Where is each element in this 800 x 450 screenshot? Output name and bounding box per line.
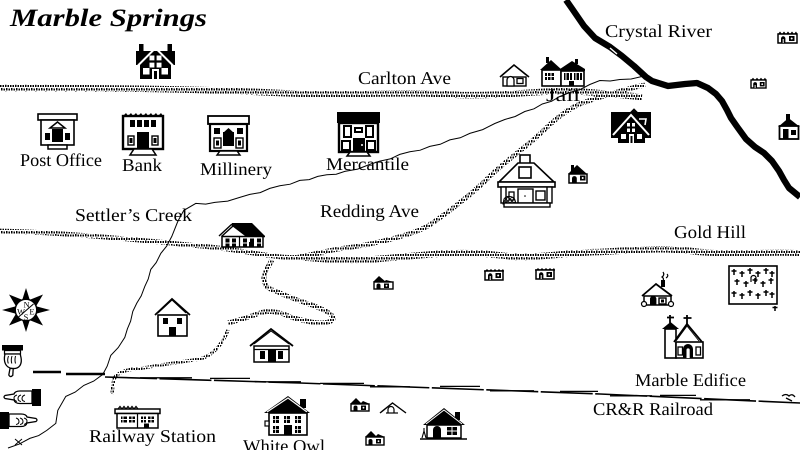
svg-text:Bank: Bank	[122, 155, 162, 175]
svg-text:Post Office: Post Office	[20, 150, 102, 170]
svg-text:Railway Station: Railway Station	[89, 426, 216, 446]
svg-text:Crystal River: Crystal River	[605, 21, 712, 41]
svg-text:S: S	[24, 312, 29, 322]
svg-text:Jail: Jail	[546, 85, 580, 105]
svg-text:Gold Hill: Gold Hill	[674, 222, 746, 242]
svg-text:Marble Springs: Marble Springs	[9, 5, 207, 32]
svg-text:E: E	[29, 307, 34, 317]
svg-text:Millinery: Millinery	[200, 159, 272, 179]
svg-text:Settler’s Creek: Settler’s Creek	[75, 205, 192, 225]
svg-text:Mercantile: Mercantile	[326, 154, 409, 174]
svg-text:Redding Ave: Redding Ave	[320, 201, 419, 221]
svg-text:Marble Edifice: Marble Edifice	[635, 370, 746, 390]
svg-text:CR&R Railroad: CR&R Railroad	[593, 399, 713, 419]
svg-text:White Owl: White Owl	[243, 436, 325, 450]
svg-text:Carlton Ave: Carlton Ave	[358, 68, 451, 88]
